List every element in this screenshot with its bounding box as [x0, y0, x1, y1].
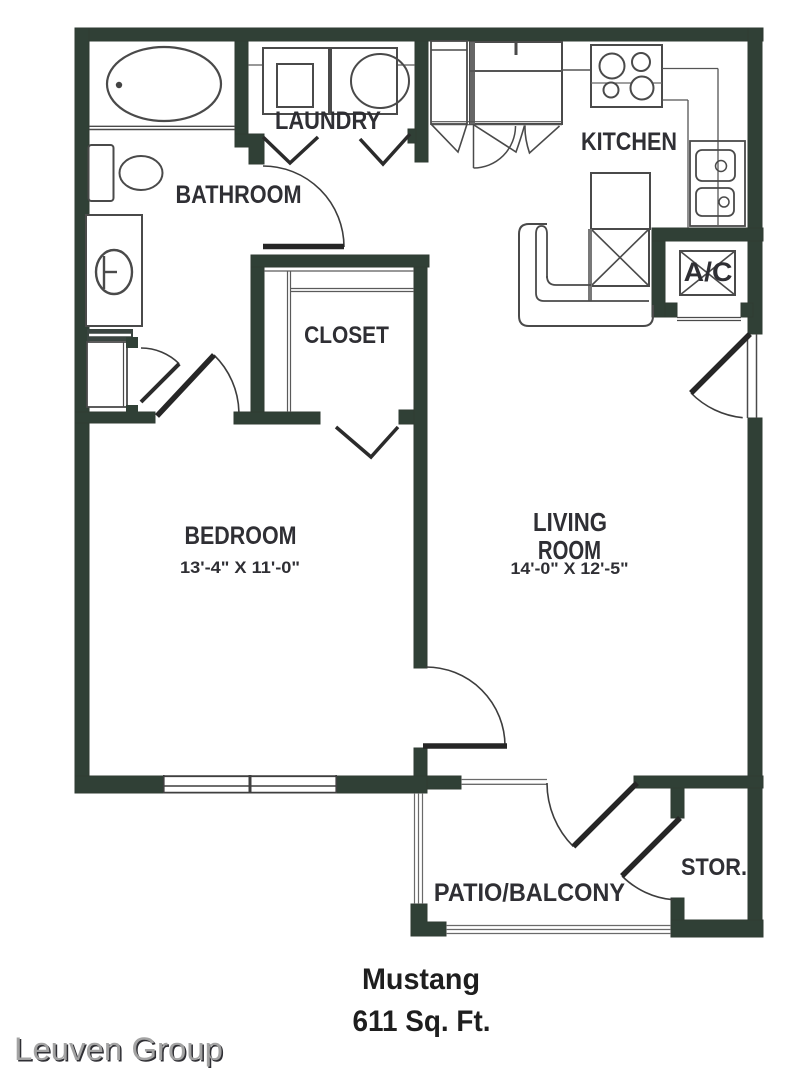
svg-text:14'-0" X 12'-5": 14'-0" X 12'-5" — [511, 560, 629, 579]
svg-text:13'-4" X 11'-0": 13'-4" X 11'-0" — [180, 559, 300, 578]
svg-text:A/C: A/C — [684, 258, 733, 288]
svg-text:LAUNDRY: LAUNDRY — [275, 107, 381, 135]
svg-text:BATHROOM: BATHROOM — [176, 181, 302, 209]
svg-text:BEDROOM: BEDROOM — [185, 522, 297, 550]
svg-text:CLOSET: CLOSET — [304, 321, 389, 349]
svg-text:PATIO/BALCONY: PATIO/BALCONY — [434, 879, 625, 907]
svg-text:Leuven Group: Leuven Group — [14, 1031, 223, 1067]
svg-text:Mustang: Mustang — [362, 963, 480, 996]
svg-text:611 Sq. Ft.: 611 Sq. Ft. — [353, 1005, 491, 1038]
svg-text:STOR.: STOR. — [681, 853, 747, 881]
svg-text:KITCHEN: KITCHEN — [581, 128, 677, 156]
svg-text:LIVING: LIVING — [533, 508, 607, 537]
